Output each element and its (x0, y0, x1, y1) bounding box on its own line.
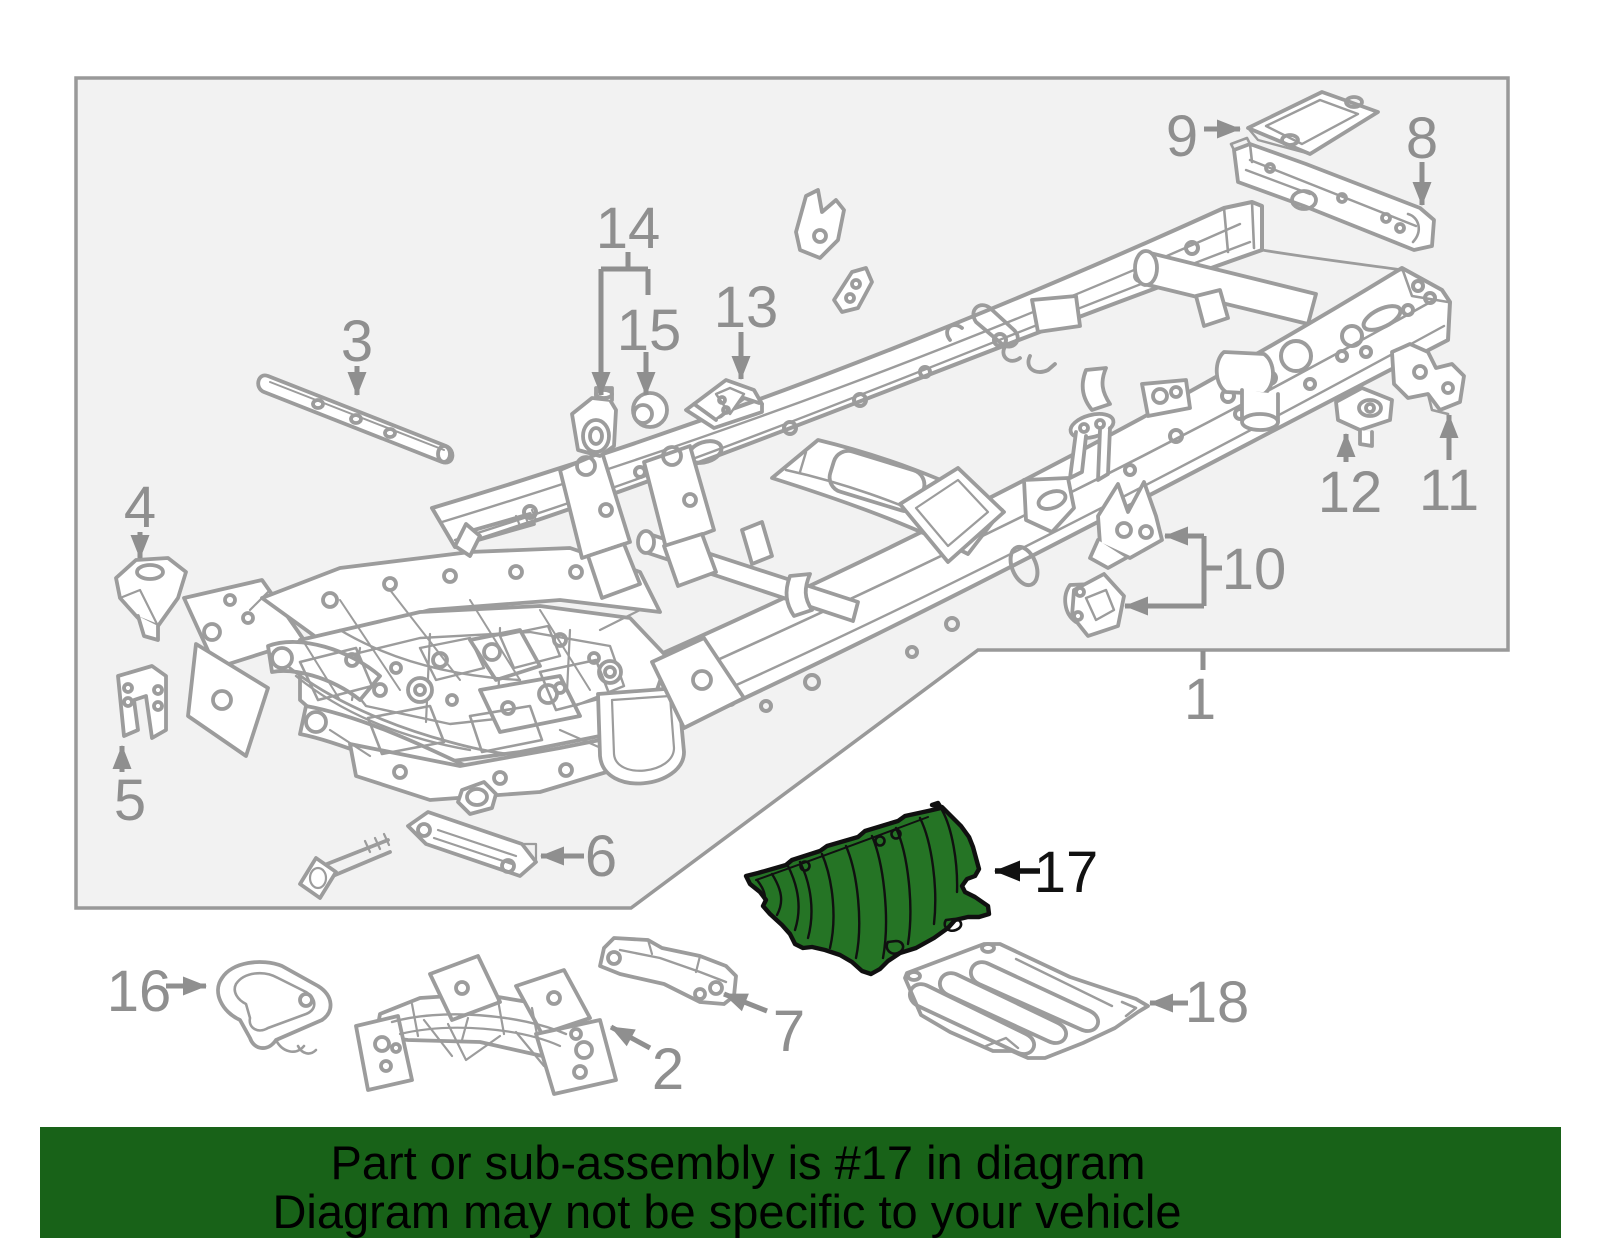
svg-text:10: 10 (1222, 537, 1287, 602)
svg-text:15: 15 (617, 298, 682, 363)
svg-text:1: 1 (1184, 667, 1216, 732)
svg-text:14: 14 (596, 196, 661, 261)
svg-text:4: 4 (124, 475, 156, 540)
svg-text:3: 3 (341, 309, 373, 374)
svg-text:8: 8 (1406, 106, 1438, 171)
svg-text:Part or sub-assembly is #17 in: Part or sub-assembly is #17 in diagram (330, 1136, 1145, 1189)
svg-text:12: 12 (1318, 460, 1383, 525)
svg-text:9: 9 (1166, 104, 1198, 169)
svg-text:5: 5 (114, 768, 146, 833)
svg-text:Diagram may not be specific to: Diagram may not be specific to your vehi… (272, 1185, 1181, 1238)
svg-text:16: 16 (107, 959, 172, 1024)
svg-text:2: 2 (652, 1037, 684, 1102)
svg-text:7: 7 (773, 999, 805, 1064)
svg-text:17: 17 (1034, 840, 1099, 905)
svg-text:6: 6 (585, 824, 617, 889)
svg-text:13: 13 (714, 275, 779, 340)
svg-text:18: 18 (1185, 970, 1250, 1035)
svg-text:11: 11 (1419, 458, 1479, 523)
